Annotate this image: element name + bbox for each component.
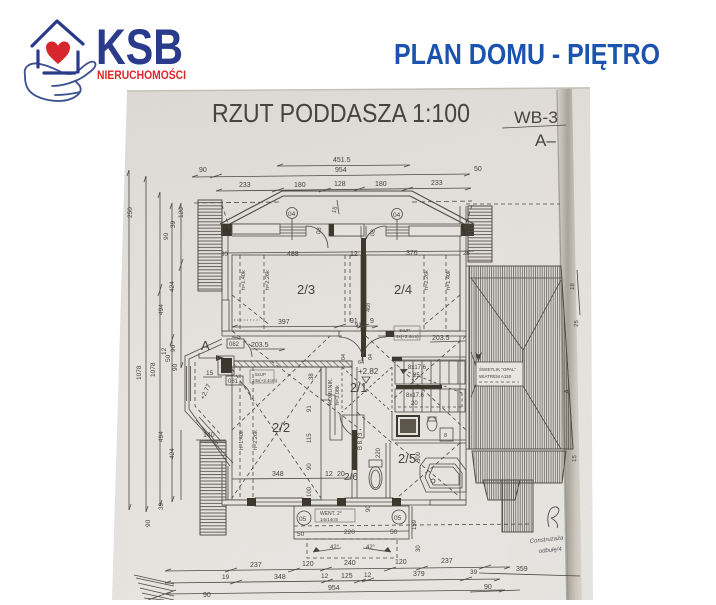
- svg-text:90: 90: [172, 363, 179, 371]
- svg-text:100: 100: [307, 486, 313, 497]
- svg-text:237: 237: [250, 562, 262, 569]
- svg-text:120: 120: [178, 207, 185, 218]
- svg-text:203.5: 203.5: [432, 335, 450, 342]
- svg-text:9: 9: [370, 318, 374, 325]
- svg-text:359: 359: [516, 566, 528, 573]
- svg-text:50: 50: [474, 166, 482, 173]
- svg-text:081: 081: [228, 379, 239, 385]
- svg-text:A.: A.: [564, 387, 571, 394]
- svg-text:ŚWIETLIK "OPAL": ŚWIETLIK "OPAL": [479, 365, 517, 372]
- svg-text:12: 12: [161, 347, 168, 355]
- svg-text:18: 18: [570, 282, 576, 290]
- svg-text:125: 125: [341, 573, 353, 580]
- svg-text:04: 04: [341, 354, 347, 360]
- svg-text:8x17.6: 8x17.6: [408, 365, 427, 371]
- svg-text:h=2.26k: h=2.26k: [424, 270, 430, 290]
- svg-text:140: 140: [203, 432, 215, 439]
- svg-text:2/4: 2/4: [394, 282, 412, 297]
- svg-text:12: 12: [364, 572, 372, 579]
- svg-text:90: 90: [203, 592, 211, 599]
- svg-text:91: 91: [350, 318, 358, 325]
- svg-text:240: 240: [344, 560, 356, 567]
- svg-text:04: 04: [368, 354, 374, 360]
- svg-text:A: A: [201, 338, 210, 353]
- svg-text:RZUT PODDASZA 1:100: RZUT PODDASZA 1:100: [212, 98, 470, 128]
- svg-text:WIATREM A150: WIATREM A150: [479, 374, 512, 379]
- svg-text:90: 90: [484, 584, 492, 591]
- svg-text:39: 39: [470, 569, 478, 576]
- svg-text:B 8.73: B 8.73: [358, 432, 364, 450]
- svg-text:50: 50: [165, 354, 172, 362]
- svg-text:120: 120: [395, 559, 407, 566]
- svg-text:42°: 42°: [330, 545, 340, 551]
- svg-text:4x(+2.4cm): 4x(+2.4cm): [396, 334, 419, 339]
- svg-text:12: 12: [325, 471, 333, 478]
- svg-text:348: 348: [272, 471, 284, 478]
- svg-text:20: 20: [411, 401, 418, 407]
- svg-text:2/1: 2/1: [350, 381, 367, 395]
- svg-text:PLAN DOMU - PIĘTRO: PLAN DOMU - PIĘTRO: [394, 39, 660, 71]
- svg-text:15: 15: [206, 370, 214, 377]
- svg-text:494: 494: [158, 304, 165, 315]
- svg-text:120: 120: [302, 561, 314, 568]
- svg-text:954: 954: [328, 585, 340, 592]
- svg-text:KSB: KSB: [96, 19, 183, 75]
- svg-text:15: 15: [572, 454, 578, 462]
- svg-text:NIERUCHOMOŚCI: NIERUCHOMOŚCI: [97, 69, 186, 82]
- svg-text:8: 8: [444, 433, 447, 439]
- svg-text:494: 494: [158, 431, 165, 442]
- svg-text:90: 90: [170, 344, 177, 352]
- svg-text:90: 90: [163, 232, 170, 240]
- svg-text:42°: 42°: [366, 545, 376, 551]
- svg-text:90: 90: [199, 167, 207, 174]
- svg-text:19: 19: [222, 574, 230, 581]
- svg-text:h=2.26k: h=2.26k: [265, 270, 271, 290]
- svg-text:233: 233: [239, 182, 251, 189]
- svg-text:115: 115: [307, 433, 313, 443]
- svg-text:233: 233: [431, 180, 443, 187]
- svg-text:h=2.26k: h=2.26k: [253, 430, 259, 450]
- svg-text:2/3: 2/3: [297, 282, 315, 297]
- svg-text:12: 12: [321, 573, 329, 580]
- svg-text:39: 39: [158, 502, 165, 510]
- svg-text:05: 05: [299, 516, 307, 523]
- svg-text:KOMUNIK.: KOMUNIK.: [328, 377, 334, 405]
- svg-text:05: 05: [394, 515, 402, 522]
- svg-text:159: 159: [412, 519, 418, 530]
- svg-text:39: 39: [170, 220, 177, 228]
- svg-text:2/6: 2/6: [344, 472, 358, 483]
- svg-text:376: 376: [406, 250, 418, 257]
- svg-text:25: 25: [574, 319, 580, 327]
- svg-text:50: 50: [390, 529, 398, 536]
- svg-text:128: 128: [334, 181, 346, 188]
- svg-text:A–: A–: [535, 131, 556, 150]
- svg-text:h=1.40k: h=1.40k: [446, 270, 452, 290]
- svg-text:397: 397: [278, 319, 290, 326]
- svg-text:379: 379: [413, 571, 425, 578]
- svg-text:424: 424: [169, 448, 176, 459]
- svg-text:424: 424: [169, 281, 176, 292]
- svg-text:954: 954: [335, 167, 347, 174]
- svg-text:30: 30: [416, 545, 422, 552]
- svg-text:12: 12: [350, 251, 358, 258]
- svg-text:91: 91: [307, 405, 313, 412]
- svg-text:+2.82: +2.82: [358, 367, 379, 376]
- svg-text:2/5: 2/5: [398, 451, 416, 466]
- svg-text:1078: 1078: [136, 365, 143, 380]
- svg-text:h=1.40k: h=1.40k: [241, 270, 247, 290]
- svg-text:180: 180: [375, 181, 387, 188]
- svg-text:300: 300: [416, 451, 422, 462]
- svg-text:8x17.6: 8x17.6: [406, 393, 425, 399]
- svg-text:237: 237: [441, 558, 453, 565]
- svg-text:220: 220: [344, 529, 355, 536]
- svg-text:04: 04: [288, 211, 296, 218]
- svg-text:203.5: 203.5: [251, 342, 269, 349]
- svg-text:082: 082: [229, 342, 240, 348]
- svg-text:h=3.08k: h=3.08k: [335, 385, 341, 405]
- svg-text:50: 50: [297, 531, 305, 538]
- svg-text:220: 220: [376, 447, 382, 458]
- svg-text:468: 468: [366, 303, 372, 312]
- svg-text:h=1.40k: h=1.40k: [239, 430, 245, 450]
- svg-text:451.5: 451.5: [333, 157, 351, 164]
- svg-text:38: 38: [309, 373, 315, 380]
- svg-text:14x14cm: 14x14cm: [320, 517, 339, 522]
- svg-text:5xUP: 5xUP: [255, 372, 266, 377]
- svg-text:348: 348: [274, 574, 286, 581]
- svg-text:WB-3: WB-3: [514, 108, 558, 127]
- svg-text:488: 488: [287, 251, 299, 258]
- svg-text:180: 180: [294, 182, 306, 189]
- svg-text:3xUP: 3xUP: [399, 328, 410, 333]
- svg-text:250: 250: [127, 207, 134, 218]
- svg-text:90: 90: [145, 519, 152, 527]
- svg-text:90: 90: [307, 463, 313, 470]
- svg-text:25: 25: [413, 373, 420, 379]
- svg-text:04: 04: [393, 212, 401, 219]
- svg-text:64: 64: [358, 360, 364, 366]
- svg-text:1078: 1078: [150, 362, 157, 377]
